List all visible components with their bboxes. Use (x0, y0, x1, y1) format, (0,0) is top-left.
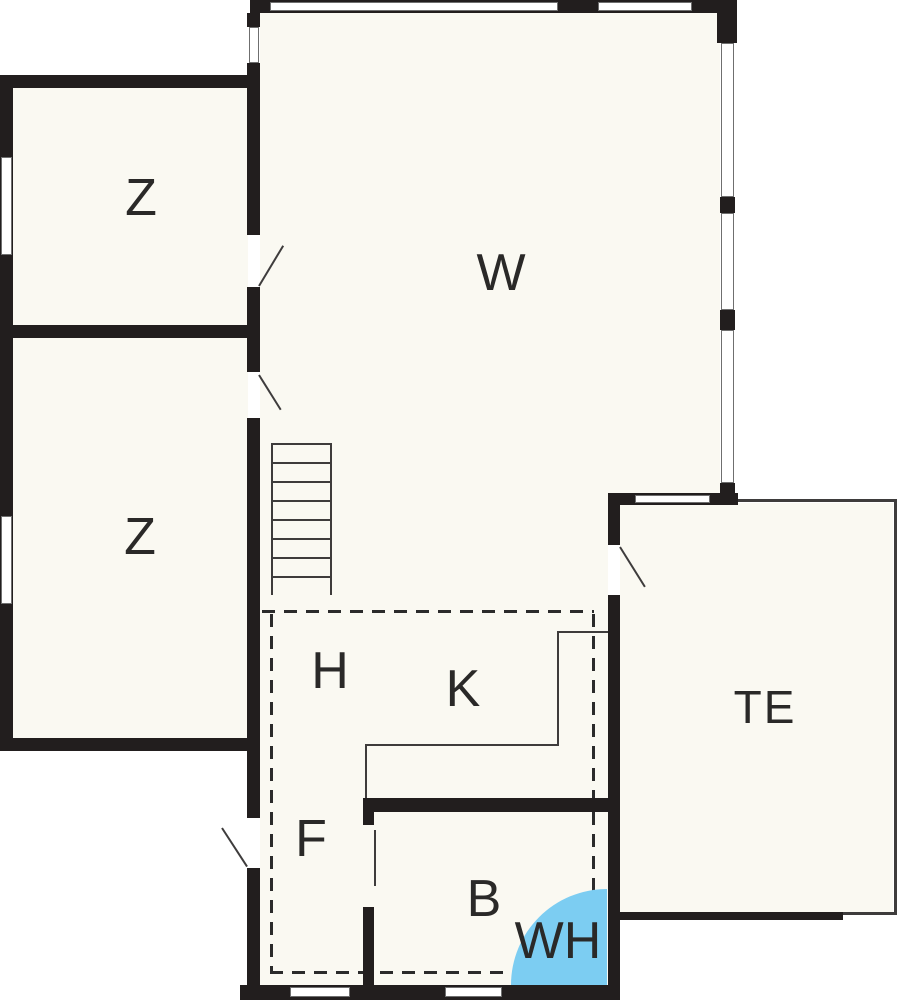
door-leaf-entrance (221, 827, 248, 867)
room-label-z2: Z (124, 511, 156, 563)
wall-entry-left-upper (247, 751, 260, 818)
stairs-tread (271, 500, 332, 502)
door-leaf-bath (374, 830, 376, 886)
window-west-small (249, 27, 259, 63)
room-label-k: K (446, 663, 481, 715)
stairs-tread (271, 538, 332, 540)
wall-west-strip-d (247, 418, 260, 751)
room-label-te: TE (734, 684, 797, 730)
room-label-b: B (467, 873, 502, 925)
window-z2 (1, 516, 12, 604)
stairs-tread (271, 519, 332, 521)
window-right-2 (721, 213, 734, 310)
wall-terrace-left-upper (608, 493, 620, 545)
wall-terrace-bottom (620, 912, 843, 920)
dashed-boundary-right (592, 614, 595, 912)
window-right-1 (721, 43, 734, 197)
wall-z-bottom (0, 738, 260, 751)
wall-terrace-left-lower (608, 595, 620, 990)
dashed-boundary-left (270, 614, 273, 974)
room-label-f: F (295, 813, 327, 865)
window-right-3 (721, 330, 734, 483)
terrace-outline-bottom (843, 912, 897, 915)
kitchen-counter-right (557, 631, 559, 746)
kitchen-counter-bottom (366, 744, 559, 746)
terrace-outline-right (894, 499, 897, 915)
dashed-boundary-top (262, 610, 594, 613)
wall-z-divider (0, 325, 248, 338)
window-z1 (1, 157, 12, 255)
window-terrace (635, 495, 710, 503)
window-top-2 (598, 2, 692, 11)
wall-west-strip-a (247, 13, 260, 27)
room-label-z1: Z (125, 172, 157, 224)
wall-right-a (720, 197, 735, 213)
stairs-tread (271, 443, 332, 445)
kitchen-counter-left (365, 744, 367, 799)
terrace-outline-top (736, 499, 897, 502)
room-label-wh: WH (515, 915, 602, 967)
wall-bath-left-upper (363, 798, 374, 825)
window-bottom-1 (290, 987, 350, 997)
room-label-h: H (311, 645, 349, 697)
stairs-tread (271, 462, 332, 464)
stairs-tread (271, 557, 332, 559)
wall-entry-left-lower (247, 868, 260, 1000)
wall-right-corner (717, 0, 737, 43)
wall-bath-top (363, 798, 620, 812)
stairs-tread (271, 576, 332, 578)
window-bottom-2 (445, 987, 502, 997)
wall-west-strip-b (247, 63, 260, 235)
wall-west-strip-c (247, 287, 260, 372)
wall-right-b (720, 310, 735, 330)
room-label-w: W (476, 247, 525, 299)
kitchen-counter-top (558, 631, 608, 633)
floor-plan-canvas: Z Z W H K F B TE WH (0, 0, 901, 1000)
window-top-1 (270, 2, 558, 11)
stairs-tread (271, 481, 332, 483)
wall-z-top (0, 75, 260, 88)
